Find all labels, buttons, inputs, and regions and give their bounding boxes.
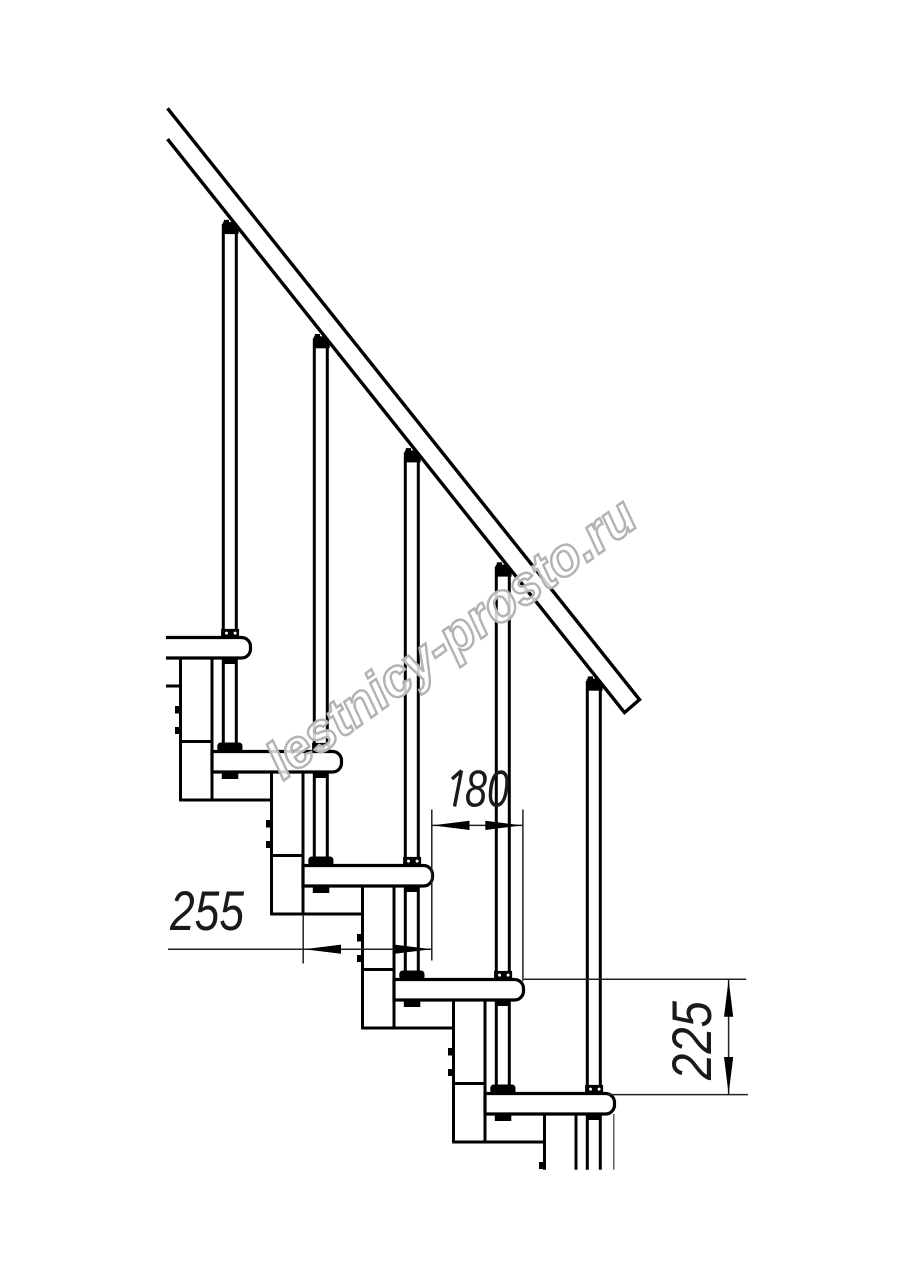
- svg-text:225: 225: [660, 1000, 723, 1081]
- svg-text:80: 80: [465, 761, 509, 819]
- svg-text:255: 255: [169, 879, 244, 942]
